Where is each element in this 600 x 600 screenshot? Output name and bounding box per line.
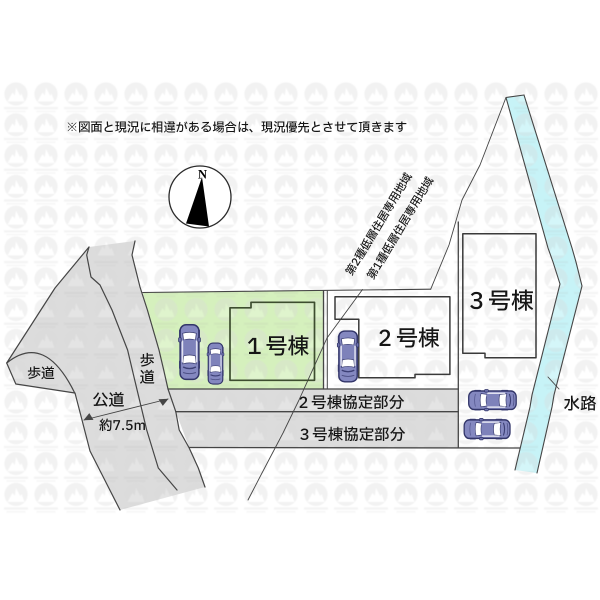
svg-text:３号棟協定部分: ３号棟協定部分 [297,424,406,447]
svg-text:２号棟協定部分: ２号棟協定部分 [296,392,405,415]
svg-text:N: N [198,168,207,182]
svg-text:１号棟: １号棟 [243,331,309,364]
svg-text:道: 道 [139,367,154,390]
svg-text:約7.5m: 約7.5m [99,416,146,436]
svg-text:※図面と現況に相違がある場合は、現況優先とさせて頂きます: ※図面と現況に相違がある場合は、現況優先とさせて頂きます [66,120,407,138]
svg-text:水路: 水路 [564,394,598,418]
svg-text:２号棟: ２号棟 [374,323,440,356]
svg-text:３号棟: ３号棟 [465,286,534,320]
svg-text:公道: 公道 [92,390,124,414]
svg-text:歩道: 歩道 [27,364,55,385]
